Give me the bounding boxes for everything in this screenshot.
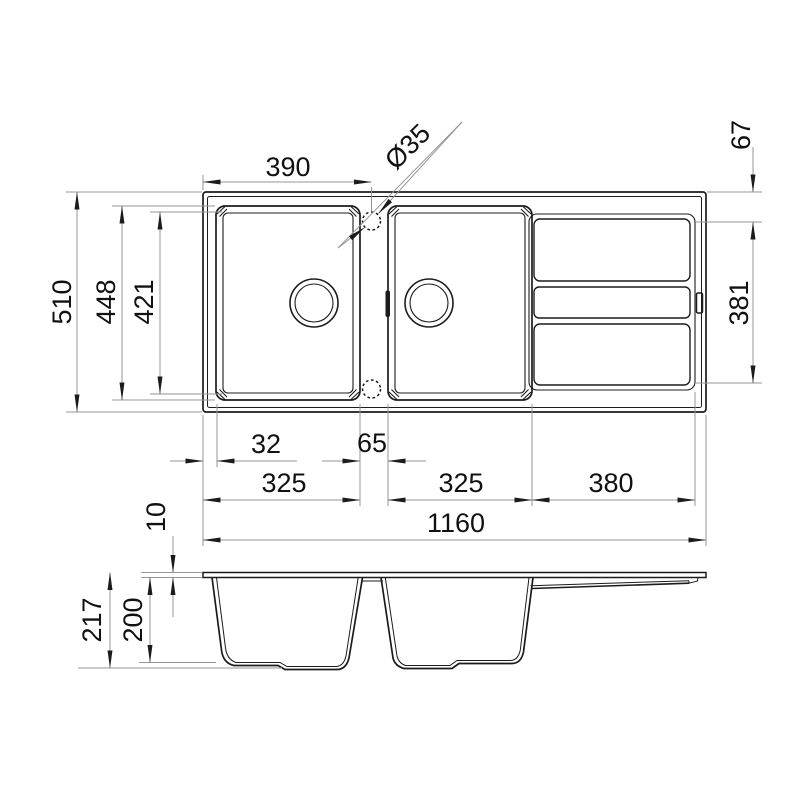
sink-outer-edge (203, 192, 706, 412)
plan-dimension-lines (66, 122, 762, 546)
section-right-step (689, 578, 698, 584)
drainer-board (529, 214, 703, 390)
sink-technical-drawing: 390 Ø35 67 510 448 421 381 32 65 325 325… (0, 0, 800, 800)
section-bowl-1-inner (217, 578, 359, 667)
drain-2-outer (405, 279, 453, 327)
drawing-canvas: 390 Ø35 67 510 448 421 381 32 65 325 325… (0, 0, 800, 800)
bowl-1 (216, 206, 360, 400)
dim-325a-label: 325 (261, 468, 306, 498)
plan-dimension-labels: 390 Ø35 67 510 448 421 381 32 65 325 325… (47, 118, 756, 538)
section-bowl-1-outer (212, 578, 363, 670)
dim-421-label: 421 (129, 279, 159, 324)
overflow-slot (386, 291, 391, 318)
dim-65-label: 65 (357, 428, 387, 458)
dim-10-label: 10 (141, 502, 171, 532)
dim-217-label: 217 (77, 597, 107, 642)
section-bowl-2-outer (381, 578, 533, 669)
dim-200-label: 200 (118, 597, 148, 642)
plan-view (203, 192, 706, 412)
drain-1-inner (295, 284, 333, 322)
section-flange (203, 573, 706, 578)
dim-67-label: 67 (726, 120, 756, 150)
section-bowl-2-inner (385, 578, 529, 666)
dim-325b-label: 325 (438, 468, 483, 498)
dim-1160-label: 1160 (427, 508, 485, 538)
dim-380-label: 380 (588, 468, 633, 498)
sink-inner-edge (208, 197, 702, 408)
section-drainer-underside-inner (531, 581, 690, 586)
section-drainer-underside-outer (532, 583, 689, 588)
drainer-rib-bottom (534, 324, 690, 385)
drain-2-inner (410, 284, 448, 322)
dim-381-label: 381 (724, 280, 754, 325)
drainer-rib-top (534, 219, 690, 281)
tap-hole-bottom (363, 380, 381, 398)
drain-1-outer (290, 279, 338, 327)
section-view (203, 573, 706, 670)
drainer-rib-middle (534, 287, 690, 318)
dim-390-label: 390 (265, 152, 310, 182)
dim-448-label: 448 (91, 279, 121, 324)
dim-510-label: 510 (47, 279, 77, 324)
section-dimension-lines (78, 536, 282, 668)
dim-32-label: 32 (251, 429, 281, 459)
dim-35-label: Ø35 (379, 118, 436, 175)
bowl-2 (388, 206, 532, 400)
